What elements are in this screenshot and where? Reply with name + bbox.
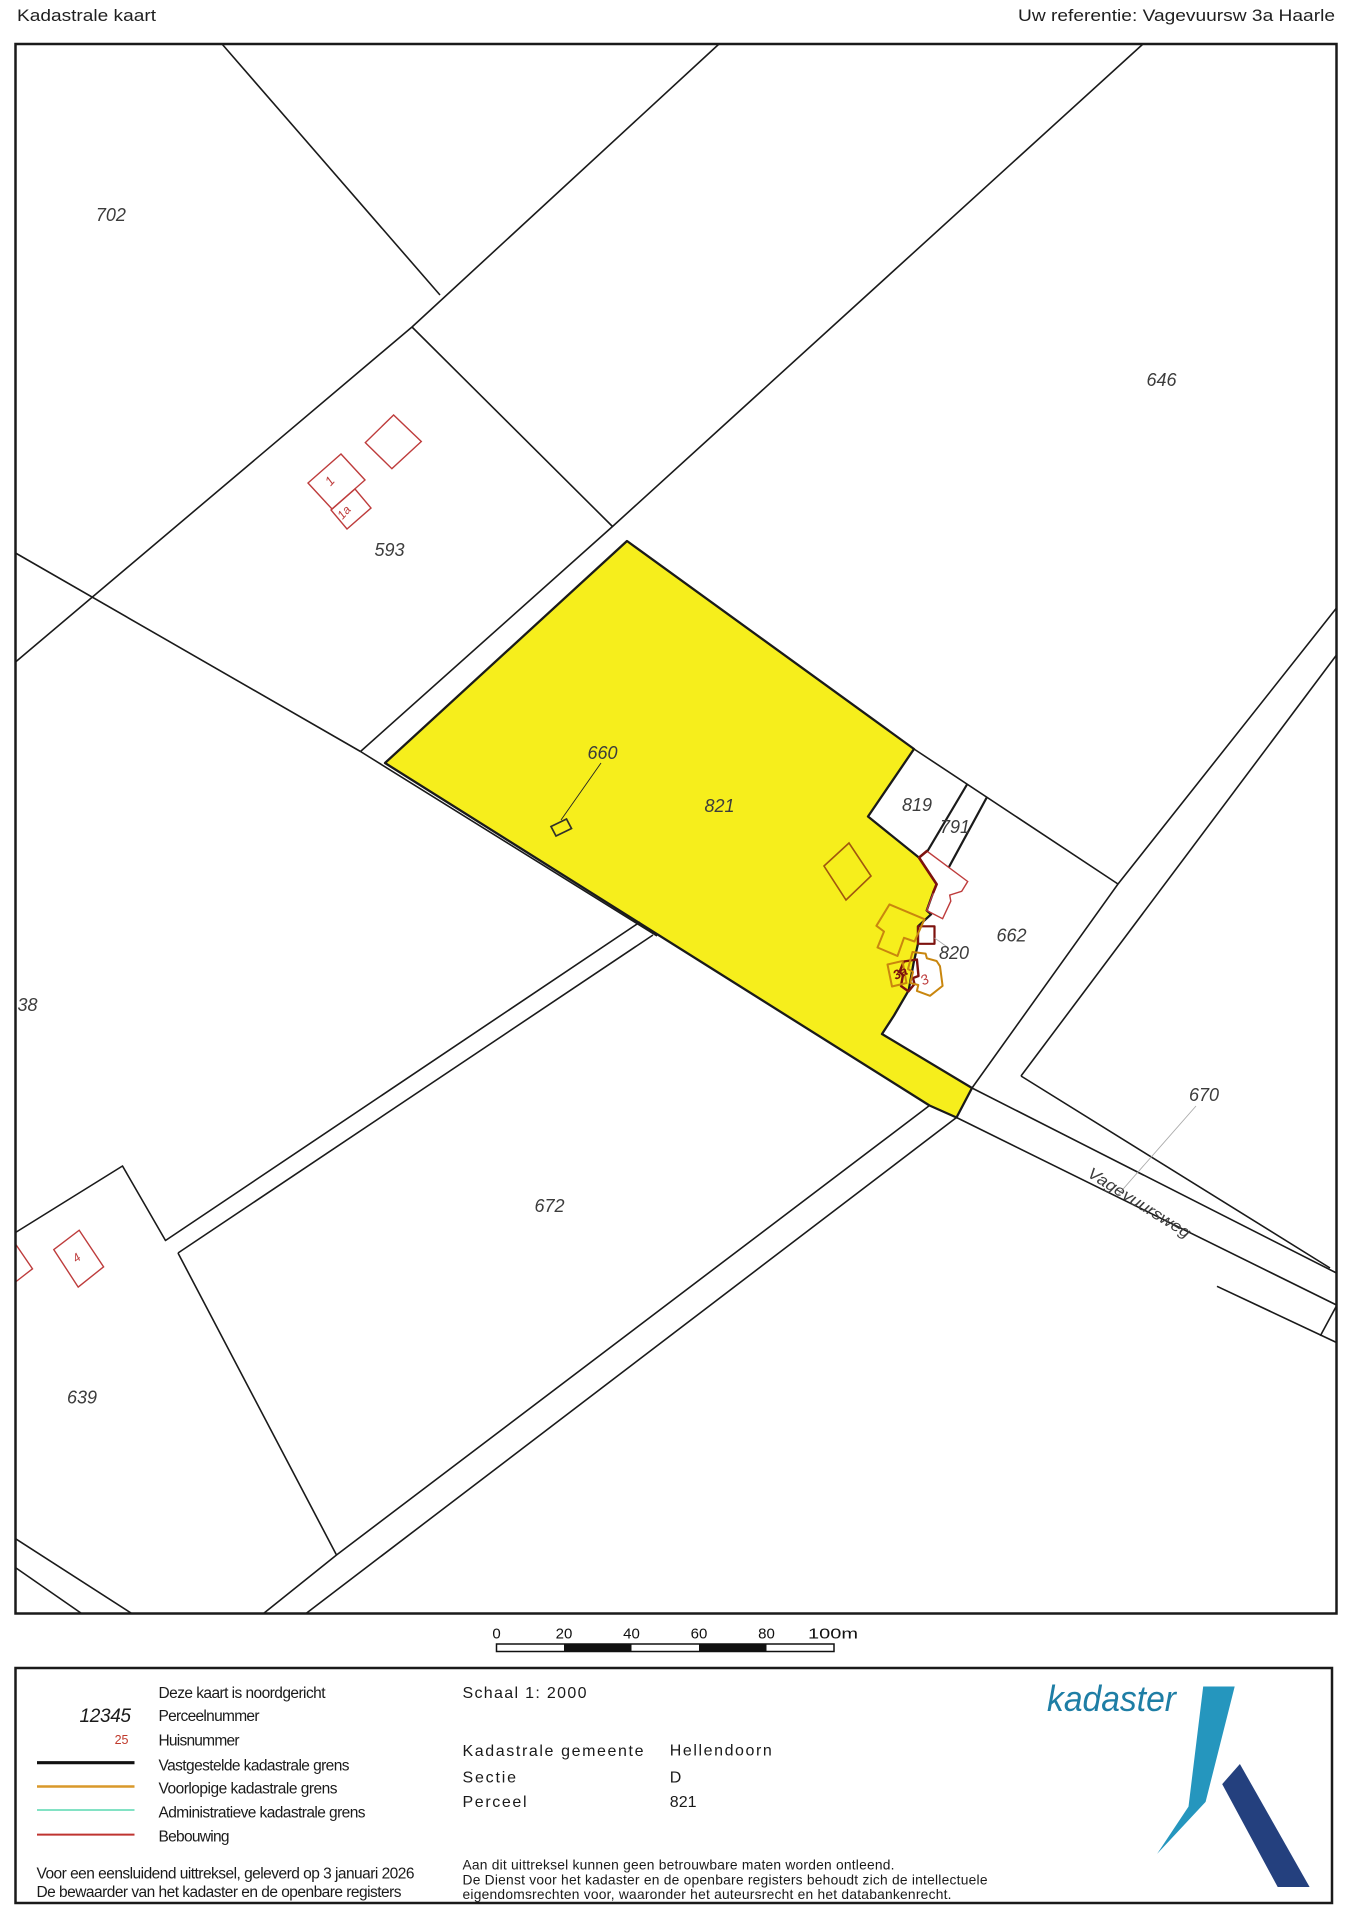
svg-text:646: 646 bbox=[1146, 370, 1177, 390]
svg-text:4: 4 bbox=[70, 1250, 84, 1265]
svg-text:Vagevuursweg: Vagevuursweg bbox=[1084, 1165, 1193, 1242]
svg-text:820: 820 bbox=[939, 943, 969, 963]
svg-text:80: 80 bbox=[758, 1626, 775, 1643]
svg-text:Sectie: Sectie bbox=[463, 1770, 517, 1787]
svg-text:Kadastrale gemeente: Kadastrale gemeente bbox=[463, 1743, 644, 1760]
svg-text:Vastgestelde kadastrale grens: Vastgestelde kadastrale grens bbox=[159, 1757, 350, 1774]
svg-text:Aan dit uittreksel kunnen geen: Aan dit uittreksel kunnen geen betrouwba… bbox=[463, 1858, 895, 1873]
svg-text:kadaster: kadaster bbox=[1047, 1678, 1178, 1719]
svg-text:Voorlopige kadastrale grens: Voorlopige kadastrale grens bbox=[159, 1781, 338, 1798]
svg-text:791: 791 bbox=[940, 817, 970, 837]
svg-text:639: 639 bbox=[67, 1388, 97, 1408]
svg-text:12345: 12345 bbox=[80, 1706, 132, 1727]
svg-text:3: 3 bbox=[917, 970, 931, 988]
svg-text:0: 0 bbox=[492, 1626, 500, 1643]
svg-text:Deze kaart is noordgericht: Deze kaart is noordgericht bbox=[159, 1685, 327, 1702]
svg-text:Administratieve kadastrale gre: Administratieve kadastrale grens bbox=[159, 1804, 366, 1821]
svg-text:Huisnummer: Huisnummer bbox=[159, 1732, 240, 1749]
svg-text:40: 40 bbox=[623, 1626, 640, 1643]
svg-text:660: 660 bbox=[587, 743, 617, 763]
svg-text:20: 20 bbox=[556, 1626, 573, 1643]
svg-text:25: 25 bbox=[115, 1733, 129, 1747]
svg-text:Kadastrale kaart: Kadastrale kaart bbox=[17, 6, 156, 25]
svg-text:1: 1 bbox=[322, 473, 338, 488]
svg-text:Uw referentie: Vagevuursw 3a H: Uw referentie: Vagevuursw 3a Haarle bbox=[1018, 6, 1335, 25]
svg-text:38: 38 bbox=[17, 995, 37, 1015]
svg-text:670: 670 bbox=[1189, 1085, 1219, 1105]
svg-text:Voor een eensluidend uittrekse: Voor een eensluidend uittreksel, gelever… bbox=[37, 1866, 415, 1883]
svg-text:60: 60 bbox=[691, 1626, 708, 1643]
svg-text:821: 821 bbox=[704, 796, 734, 816]
svg-text:702: 702 bbox=[96, 205, 126, 225]
svg-text:819: 819 bbox=[902, 795, 932, 815]
svg-text:Perceelnummer: Perceelnummer bbox=[159, 1708, 260, 1725]
svg-text:593: 593 bbox=[374, 540, 404, 560]
svg-text:eigendomsrechten voor, waarond: eigendomsrechten voor, waaronder het aut… bbox=[463, 1887, 952, 1902]
svg-text:Hellendoorn: Hellendoorn bbox=[670, 1743, 772, 1760]
svg-text:821: 821 bbox=[670, 1794, 697, 1811]
svg-text:100m: 100m bbox=[808, 1626, 858, 1643]
svg-text:Perceel: Perceel bbox=[463, 1794, 527, 1811]
svg-text:De Dienst voor het kadaster en: De Dienst voor het kadaster en de openba… bbox=[463, 1873, 988, 1888]
svg-text:D: D bbox=[670, 1770, 682, 1787]
svg-text:672: 672 bbox=[534, 1196, 564, 1216]
svg-text:Schaal 1: 2000: Schaal 1: 2000 bbox=[463, 1685, 587, 1702]
svg-text:De bewaarder van het kadaster: De bewaarder van het kadaster en de open… bbox=[37, 1884, 402, 1901]
svg-text:Bebouwing: Bebouwing bbox=[159, 1828, 230, 1845]
svg-text:662: 662 bbox=[996, 926, 1026, 946]
